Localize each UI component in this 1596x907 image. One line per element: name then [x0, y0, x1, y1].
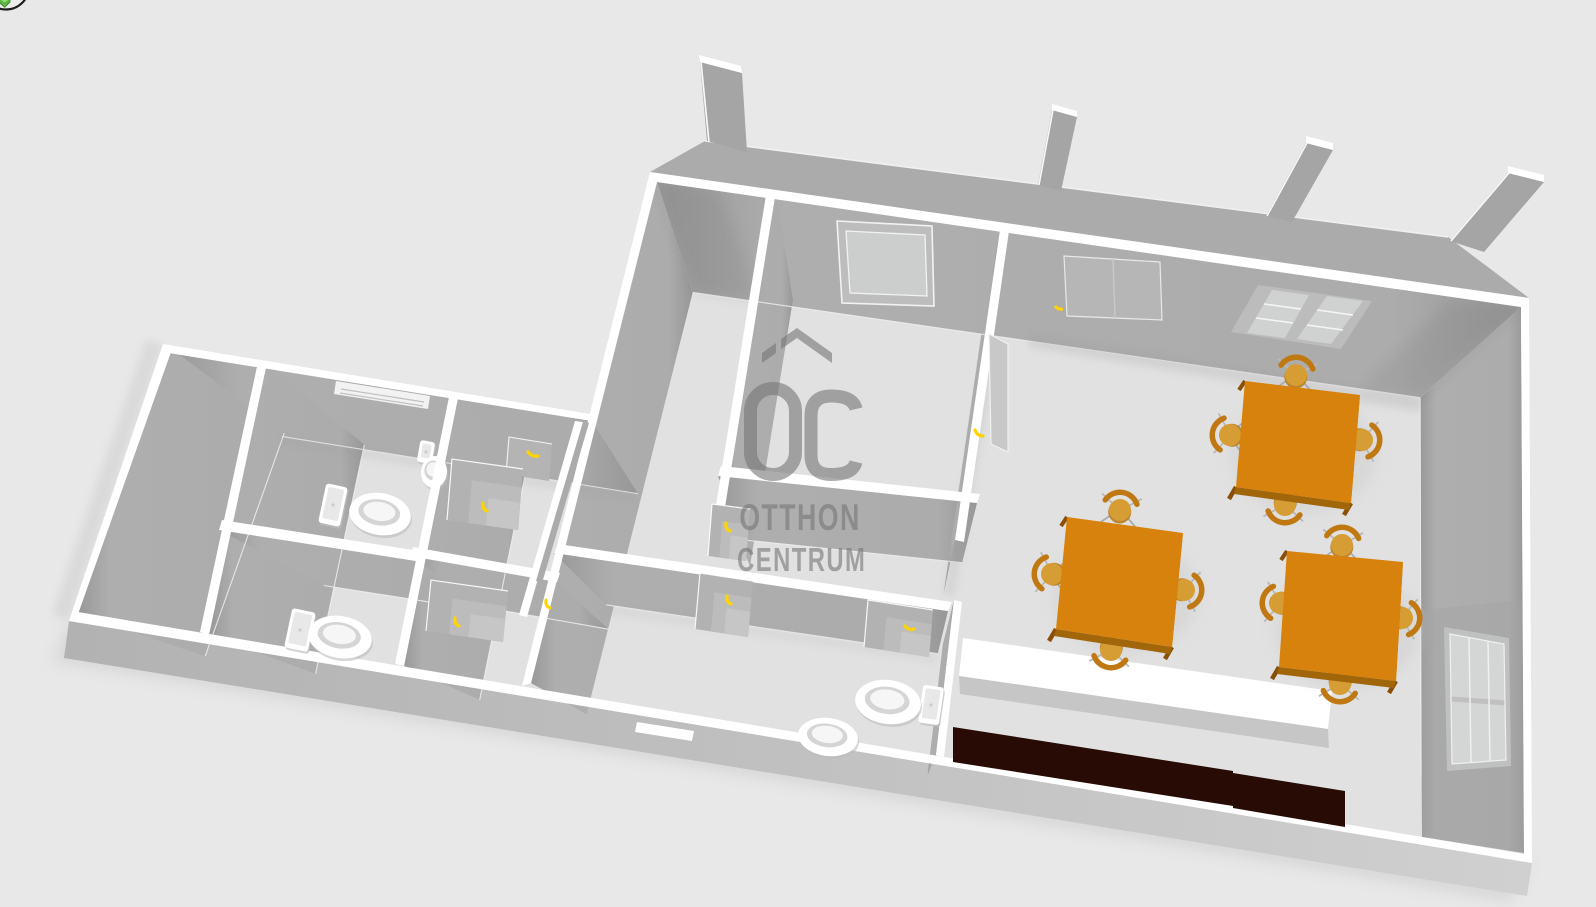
svg-text:CENTRUM: CENTRUM	[737, 542, 866, 579]
svg-text:OTTHON: OTTHON	[739, 497, 860, 538]
